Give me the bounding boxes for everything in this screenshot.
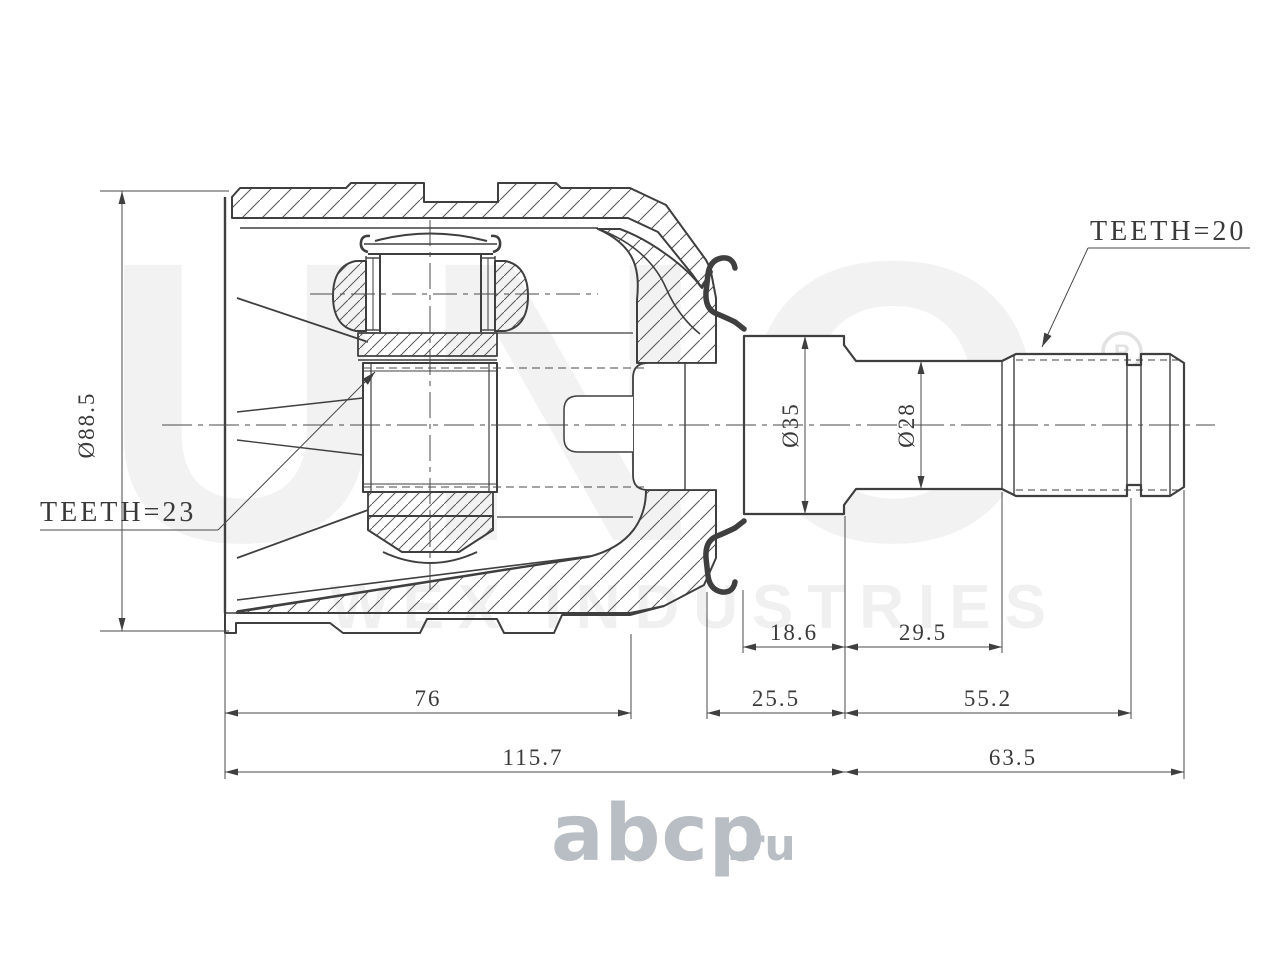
housing-diameter-label: Ø88.5 <box>74 392 99 459</box>
flange-diameter-label: Ø35 <box>778 402 803 448</box>
spline-length-label: 55.2 <box>964 686 1012 711</box>
shaft-diameter-label: Ø28 <box>894 402 919 448</box>
hub-collar-top <box>358 333 497 356</box>
cv-joint-drawing: UNO R WEX INDUSTRIES <box>0 0 1280 960</box>
seat-length-label: 18.6 <box>770 620 818 645</box>
roller-barrel-right <box>495 261 528 331</box>
overall-left-label: 115.7 <box>503 745 564 770</box>
teeth-count-shaft-label: TEETH=20 <box>1090 216 1246 247</box>
neck-length-label: 25.5 <box>752 686 800 711</box>
teeth-count-bore-label: TEETH=23 <box>40 497 196 528</box>
technical-drawing-page: UNO R WEX INDUSTRIES <box>0 0 1280 960</box>
overall-right-label: 63.5 <box>989 745 1037 770</box>
abcp-logo-suffix: .ru <box>726 820 796 871</box>
shaft-mid-length-label: 29.5 <box>899 620 947 645</box>
abcp-logo: abcp .ru <box>551 789 796 879</box>
housing-length-label: 76 <box>415 686 442 711</box>
roller-barrel-left <box>333 261 366 331</box>
